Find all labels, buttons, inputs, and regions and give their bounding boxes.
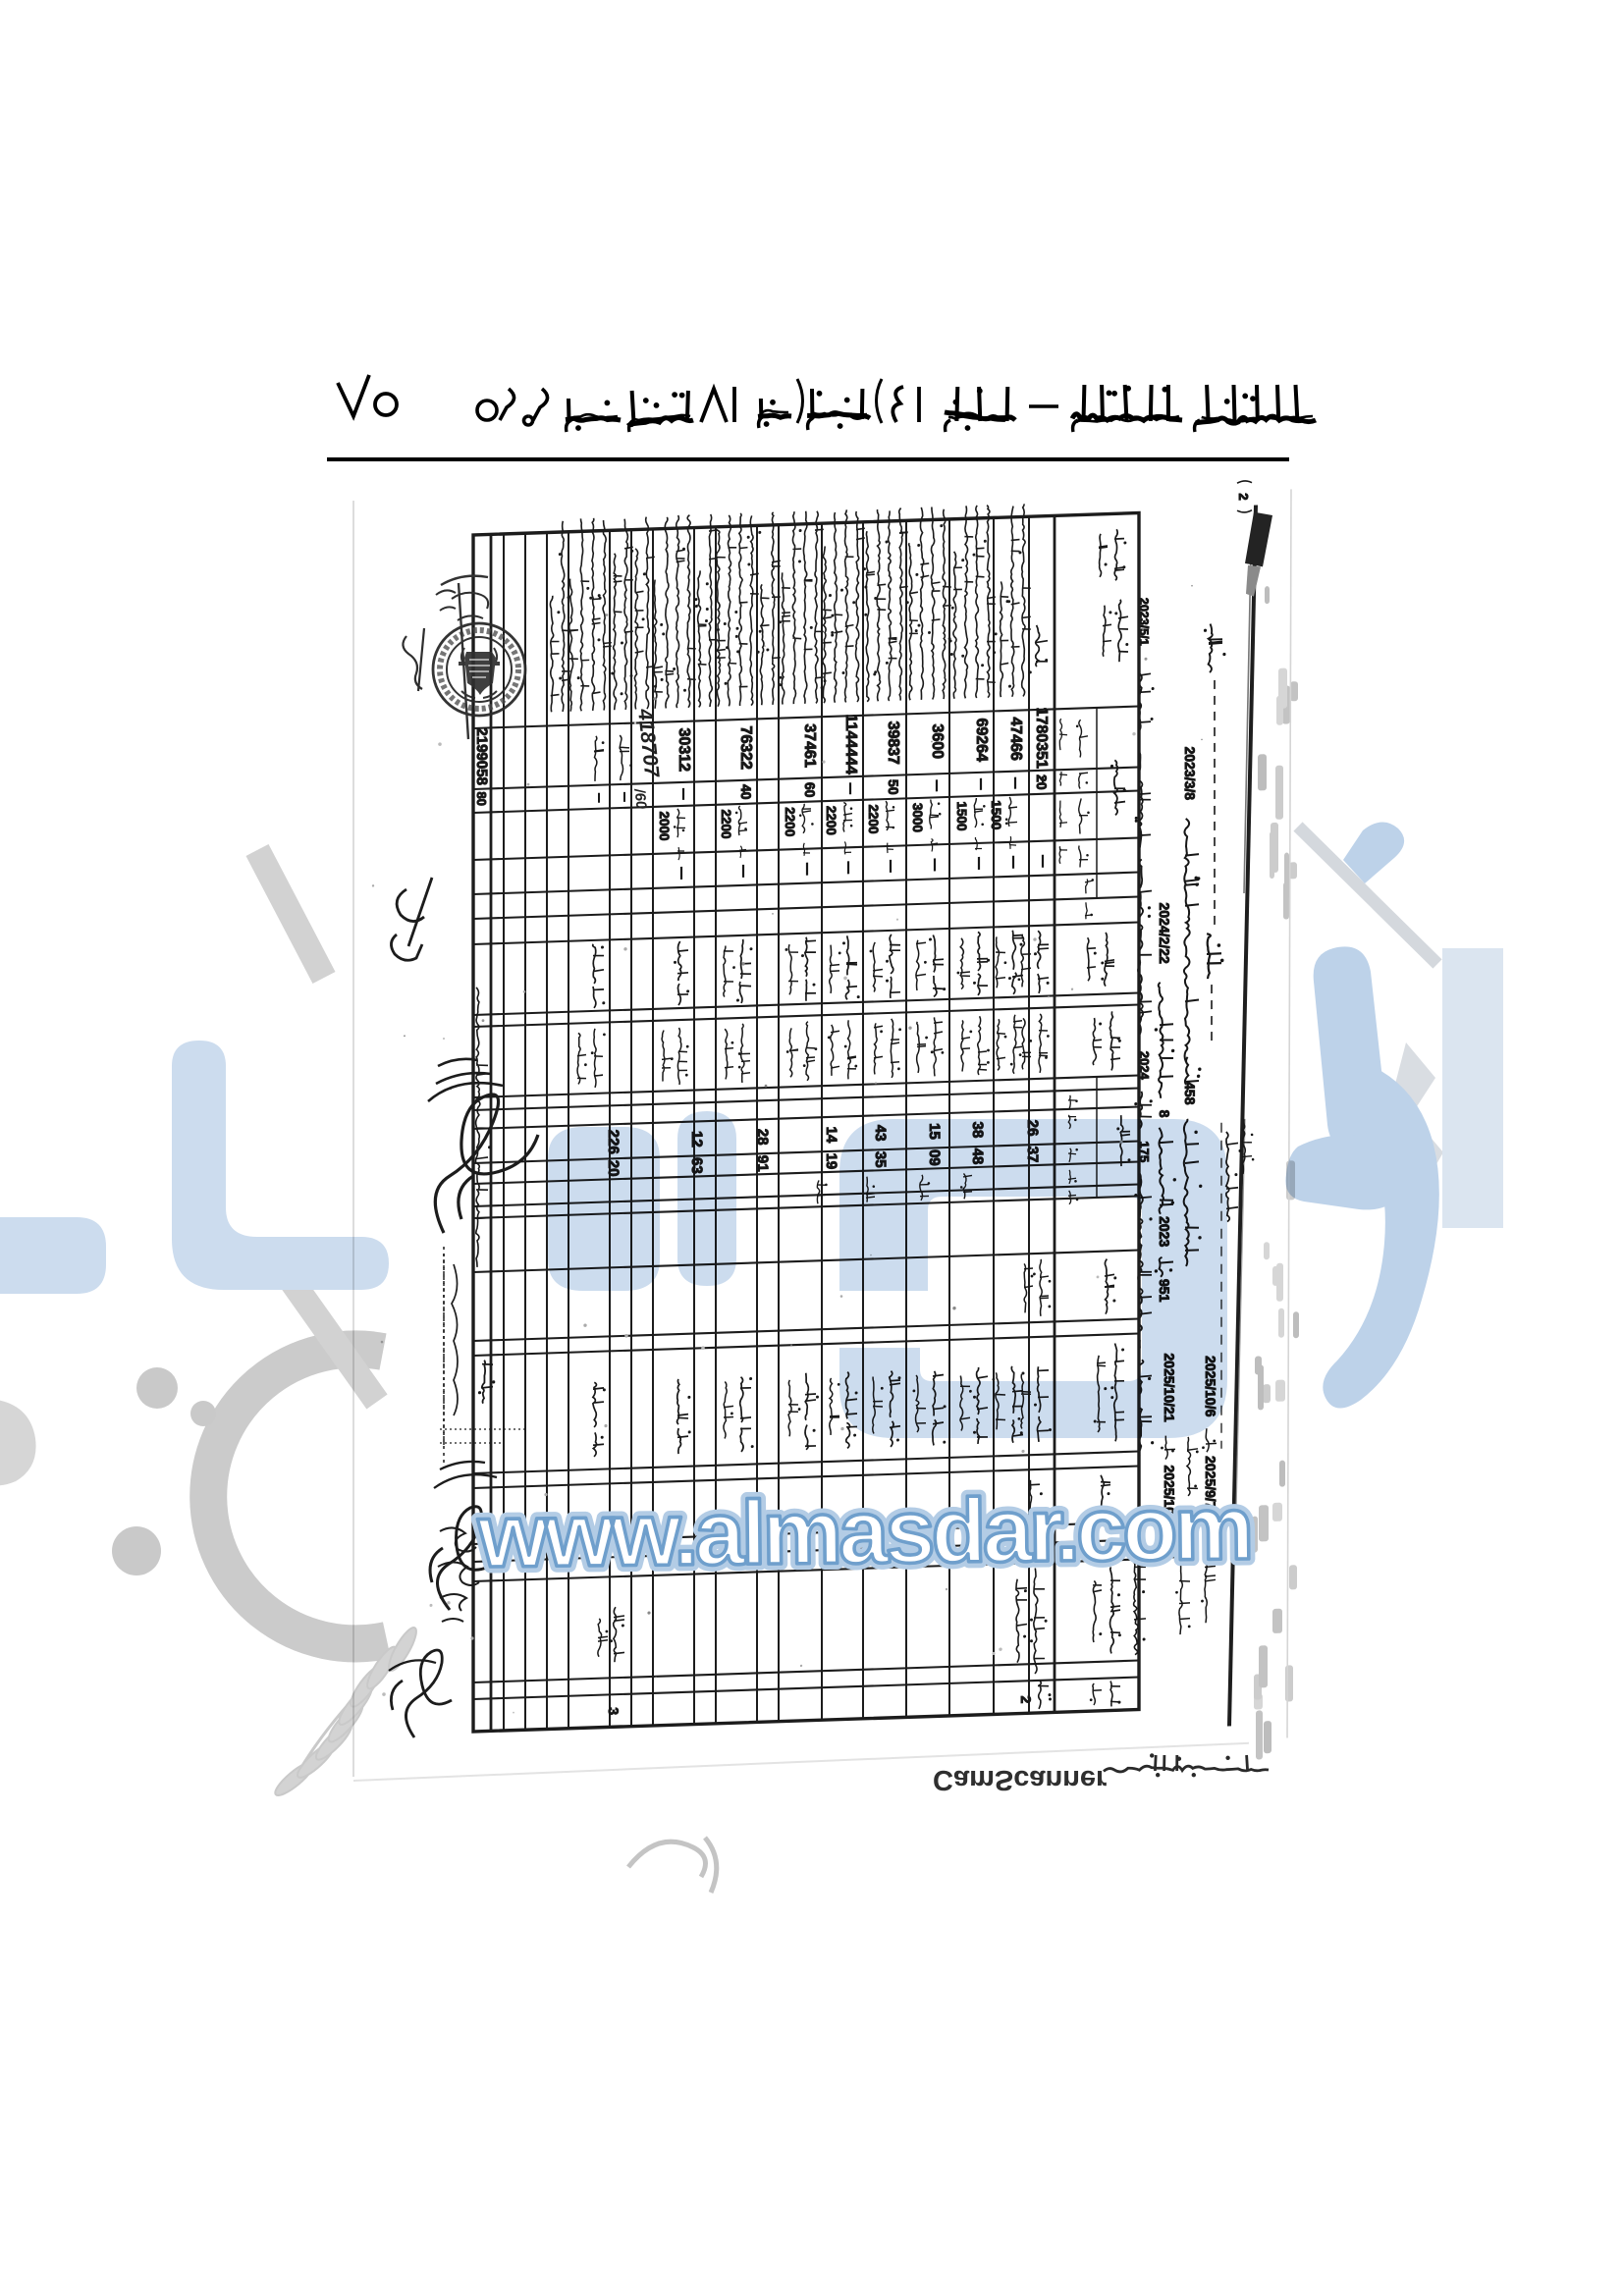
svg-text:www.almasdar.com: www.almasdar.com [476, 1478, 1251, 1586]
